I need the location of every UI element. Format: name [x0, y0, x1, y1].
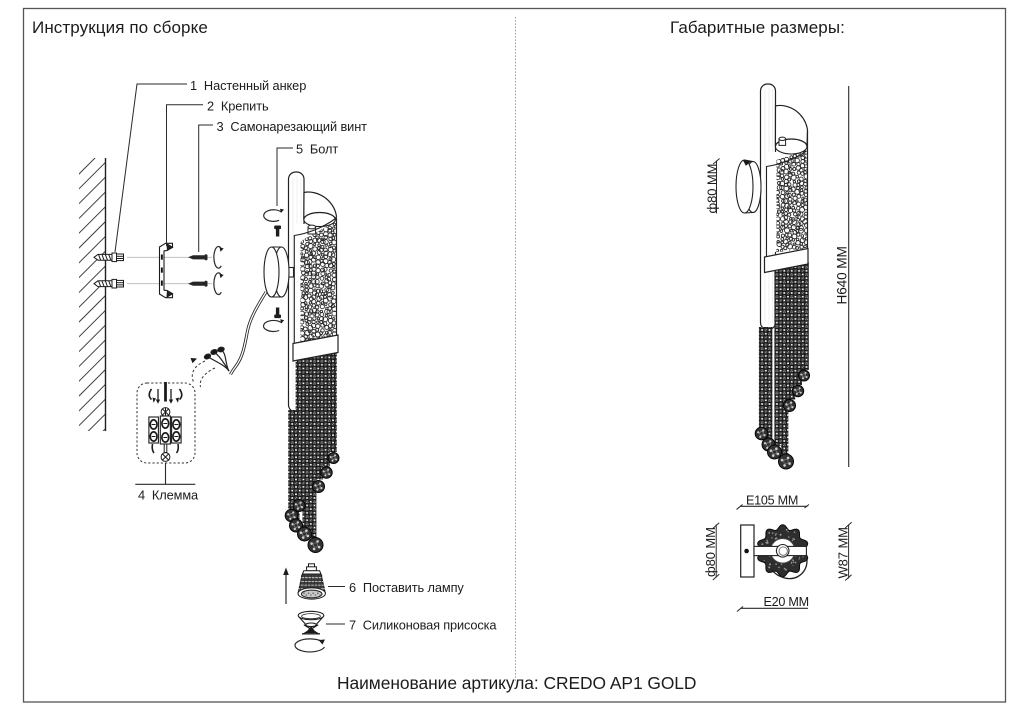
- svg-text:Инструкция по сборке: Инструкция по сборке: [32, 18, 208, 37]
- svg-text:Е20 ММ: Е20 ММ: [764, 595, 809, 609]
- svg-text:4 Клемма: 4 Клемма: [138, 488, 199, 503]
- svg-text:ф80 ММ: ф80 ММ: [703, 527, 718, 577]
- svg-text:6 Поставить лампу: 6 Поставить лампу: [349, 580, 464, 595]
- svg-text:2 Крепить: 2 Крепить: [207, 99, 269, 114]
- svg-text:3 Самонарезающий винт: 3 Самонарезающий винт: [217, 119, 368, 134]
- svg-text:7 Силиконовая присоска: 7 Силиконовая присоска: [349, 618, 497, 633]
- svg-text:1 Настенный анкер: 1 Настенный анкер: [190, 78, 306, 93]
- svg-text:ф80 ММ: ф80 ММ: [705, 164, 720, 214]
- svg-text:Габаритные размеры:: Габаритные размеры:: [670, 18, 845, 37]
- svg-text:Е105 ММ: Е105 ММ: [746, 494, 798, 508]
- svg-text:W87 ММ: W87 ММ: [836, 527, 851, 578]
- svg-text:Наименование артикула: CREDO A: Наименование артикула: CREDO AP1 GOLD: [337, 673, 696, 693]
- svg-text:5 Болт: 5 Болт: [296, 142, 338, 157]
- svg-text:Н640 ММ: Н640 ММ: [835, 246, 850, 304]
